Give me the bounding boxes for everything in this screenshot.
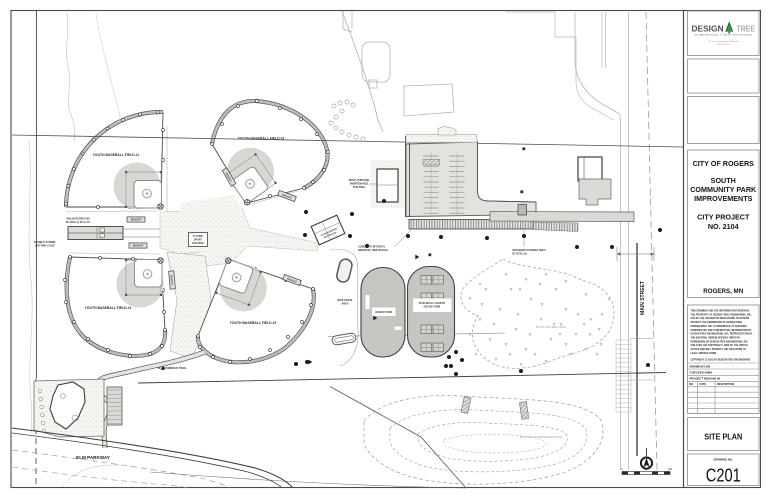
- svg-text:HOCKEY RINK: HOCKEY RINK: [375, 311, 393, 314]
- svg-text:STATES AND WILL SUBJECT THE VI: STATES AND WILL SUBJECT THE VIOLATORS TO: [691, 348, 747, 351]
- svg-text:DESIGN: DESIGN: [692, 24, 724, 34]
- svg-text:301 Cedar | Alexandria | Monti: 301 Cedar | Alexandria | Monticello: [708, 40, 740, 43]
- svg-text:DRAWN BY:: DRAWN BY:: [690, 364, 707, 368]
- svg-text:CITY PROJECT: CITY PROJECT: [697, 213, 750, 222]
- svg-text:YOUTH BASEBALL FIELD #1: YOUTH BASEBALL FIELD #1: [93, 153, 140, 157]
- svg-text:WITHOUT THE PERMISSION OF DESI: WITHOUT THE PERMISSION OF DESIGN TREE: [691, 322, 743, 324]
- svg-text:SIDEWALK (SEE DETAIL): SIDEWALK (SEE DETAIL): [358, 249, 388, 252]
- svg-text:DRAWING NO.: DRAWING NO.: [714, 458, 733, 462]
- svg-text:SITE PLAN: SITE PLAN: [704, 432, 742, 442]
- svg-text:COMMUNITY PARK: COMMUNITY PARK: [690, 185, 757, 194]
- svg-text:BUILDING: BUILDING: [353, 186, 365, 189]
- svg-text:EXISTING WETLAND: EXISTING WETLAND: [536, 326, 566, 329]
- svg-text:TREE: TREE: [737, 24, 756, 34]
- svg-text:BATTING CAGE: BATTING CAGE: [35, 243, 55, 247]
- svg-text:SOUTH: SOUTH: [711, 176, 736, 185]
- svg-text:MAIN STREET: MAIN STREET: [640, 281, 646, 315]
- svg-text:CITY OF ROGERS: CITY OF ROGERS: [693, 159, 755, 168]
- svg-text:DUGOUT: DUGOUT: [133, 245, 144, 248]
- svg-text:100: 100: [668, 468, 673, 471]
- svg-text:PLATES @ 60' & 70': PLATES @ 60' & 70': [66, 220, 91, 224]
- svg-text:THE MATERIAL HEREIN WITHOUT WR: THE MATERIAL HEREIN WITHOUT WRITTEN: [691, 336, 741, 339]
- svg-text:DOUBLE TUNNEL: DOUBLE TUNNEL: [34, 240, 57, 244]
- svg-text:THE PROPERTY OF DESIGN TREE EN: THE PROPERTY OF DESIGN TREE ENGINEERING,…: [691, 314, 753, 316]
- svg-text:BH: BH: [708, 371, 712, 375]
- svg-text:PROPRIETARY AND CONFIDENTIAL I: PROPRIETARY AND CONFIDENTIAL INFORMATION…: [691, 329, 752, 332]
- svg-text:PICKLEBALL COURTS/: PICKLEBALL COURTS/: [419, 302, 446, 305]
- svg-text:YOUTH BASEBALL FIELD #4: YOUTH BASEBALL FIELD #4: [85, 306, 132, 310]
- svg-text:DESIGN TREE ENGINEERING, INC.: DESIGN TREE ENGINEERING, INC. REPRODUCTI…: [691, 334, 754, 336]
- svg-text:SPORT: SPORT: [194, 239, 203, 242]
- svg-text:engineering + land surveying: engineering + land surveying: [695, 33, 753, 37]
- svg-text:USE BY THE HOLDER OR DISCLOSUR: USE BY THE HOLDER OR DISCLOSURE TO OTHER…: [691, 318, 750, 320]
- svg-text:PROJECT NO:: PROJECT NO:: [690, 377, 710, 381]
- svg-text:ENGINEERING, INC. IS PROHIBITE: ENGINEERING, INC. IS PROHIBITED. IT CONT…: [691, 325, 748, 328]
- svg-text:NO.: NO.: [689, 383, 694, 386]
- svg-text:CHECKED BY:: CHECKED BY:: [690, 371, 710, 375]
- svg-text:DATE: DATE: [700, 383, 707, 386]
- svg-text:EXISTING STORMWATER POND: EXISTING STORMWATER POND: [520, 436, 562, 439]
- svg-text:DUGOUT: DUGOUT: [131, 219, 142, 222]
- svg-text:AREA: AREA: [341, 302, 348, 305]
- svg-text:PERMISSION OF DESIGN TREE ENGI: PERMISSION OF DESIGN TREE ENGINEERING, I…: [691, 341, 749, 343]
- svg-text:ELM PARKWAY: ELM PARKWAY: [76, 455, 110, 460]
- svg-text:HOCKEY RINK: HOCKEY RINK: [424, 306, 441, 309]
- svg-text:DESCRIPTION: DESCRIPTION: [717, 383, 734, 386]
- svg-text:YOUTH BASEBALL FIELD #3: YOUTH BASEBALL FIELD #3: [230, 321, 277, 325]
- svg-text:ROGERS, MN: ROGERS, MN: [703, 288, 743, 295]
- svg-text:FUTURE: FUTURE: [193, 235, 203, 238]
- svg-text:LEGAL PROSECUTION.: LEGAL PROSECUTION.: [691, 352, 718, 355]
- svg-text:COPYRIGHT @ 2021 BY DESIGN TRE: COPYRIGHT @ 2021 BY DESIGN TREE ENGINEER…: [691, 360, 751, 362]
- svg-text:IMPROVEMENTS: IMPROVEMENTS: [694, 194, 753, 203]
- svg-text:KB: KB: [706, 364, 710, 368]
- svg-text:21028.00: 21028.00: [708, 377, 720, 381]
- svg-text:BUILDING: BUILDING: [192, 242, 204, 245]
- svg-text:866.321.5200: 866.321.5200: [717, 44, 730, 46]
- svg-text:VIOLATES THE COPYRIGHT LAWS OF: VIOLATES THE COPYRIGHT LAWS OF THE UNITE…: [691, 344, 748, 347]
- svg-text:NO. 2104: NO. 2104: [708, 222, 739, 231]
- svg-text:THIS DRAWING AND THE INFORMATI: THIS DRAWING AND THE INFORMATION THEREIN…: [691, 310, 750, 313]
- svg-text:C201: C201: [706, 466, 741, 486]
- svg-text:(27 STALLS): (27 STALLS): [512, 252, 527, 255]
